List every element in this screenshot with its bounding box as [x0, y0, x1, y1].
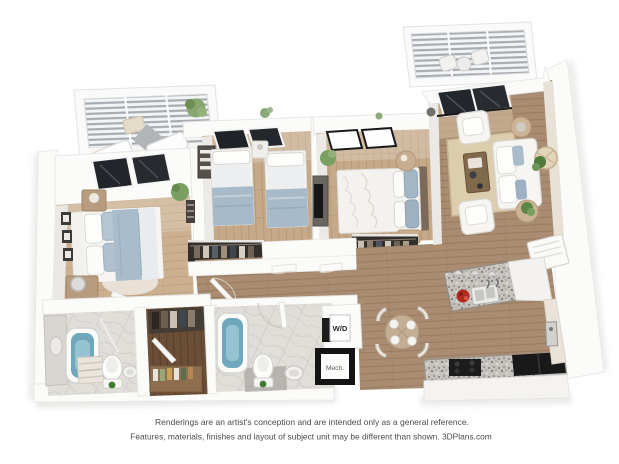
- svg-text:Features, materials, finishes: Features, materials, finishes and layout…: [130, 432, 492, 442]
- svg-text:Mech.: Mech.: [326, 365, 344, 372]
- svg-text:Renderings are an artist's con: Renderings are an artist's conception an…: [155, 417, 469, 427]
- svg-text:W/D: W/D: [333, 324, 348, 333]
